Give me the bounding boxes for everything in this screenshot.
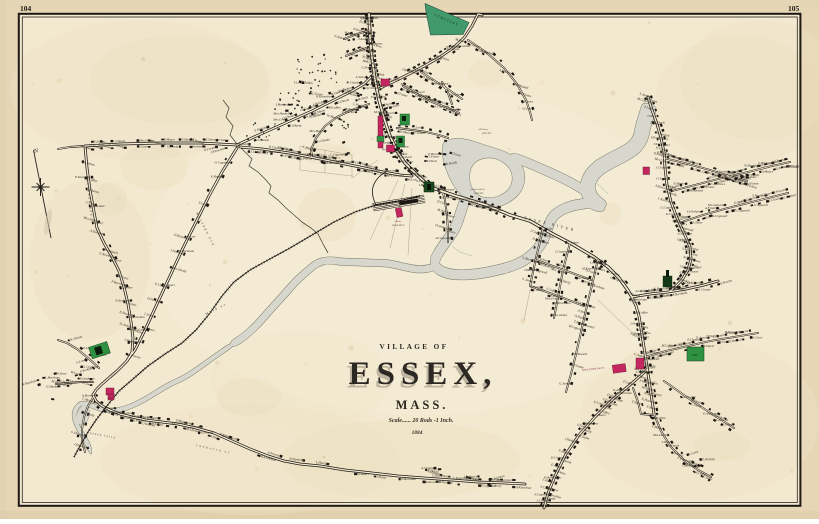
svg-text:N.Story: N.Story bbox=[691, 221, 703, 225]
svg-text:E.Burnham: E.Burnham bbox=[427, 152, 444, 156]
svg-text:N.Mears: N.Mears bbox=[672, 182, 685, 186]
svg-text:SHOE MFY: SHOE MFY bbox=[392, 224, 405, 227]
svg-text:MASS.: MASS. bbox=[396, 398, 449, 412]
svg-text:C.Davis: C.Davis bbox=[130, 340, 141, 344]
svg-text:J.Choate: J.Choate bbox=[656, 176, 668, 180]
svg-text:VILLAGE OF: VILLAGE OF bbox=[380, 343, 449, 351]
svg-text:J.Cogswell: J.Cogswell bbox=[753, 203, 768, 207]
svg-text:D.Lufkin: D.Lufkin bbox=[534, 503, 547, 507]
svg-text:MILL: MILL bbox=[107, 397, 114, 400]
svg-text:M.Cogswell: M.Cogswell bbox=[707, 203, 724, 207]
svg-text:J.Davis: J.Davis bbox=[677, 232, 688, 236]
svg-text:J.Cogswell: J.Cogswell bbox=[555, 249, 570, 253]
svg-text:S.Proctor: S.Proctor bbox=[401, 159, 414, 163]
svg-text:T.Gove: T.Gove bbox=[139, 145, 149, 149]
svg-text:N.Cogswell: N.Cogswell bbox=[711, 214, 727, 218]
svg-text:E.Cogswell: E.Cogswell bbox=[379, 111, 395, 115]
svg-text:T.Davis: T.Davis bbox=[704, 344, 715, 348]
svg-text:SHIP YD: SHIP YD bbox=[482, 132, 491, 135]
svg-text:Mrs.Davis: Mrs.Davis bbox=[652, 433, 668, 437]
svg-text:O.Davis: O.Davis bbox=[668, 443, 680, 447]
svg-text:A.Mears: A.Mears bbox=[761, 170, 774, 174]
svg-text:SHIP YD: SHIP YD bbox=[474, 192, 483, 195]
svg-text:A.D.Story: A.D.Story bbox=[477, 128, 489, 131]
svg-text:A.Story: A.Story bbox=[393, 220, 402, 223]
svg-text:C.Low: C.Low bbox=[412, 126, 422, 130]
svg-text:G.Proctor: G.Proctor bbox=[361, 65, 375, 69]
svg-text:O.Proctor: O.Proctor bbox=[382, 169, 396, 173]
svg-text:M.Howard: M.Howard bbox=[439, 188, 455, 192]
svg-text:G.Choate: G.Choate bbox=[698, 288, 711, 292]
svg-text:W.James: W.James bbox=[642, 370, 654, 374]
svg-text:T.Davis: T.Davis bbox=[427, 159, 438, 163]
svg-text:L.Gove: L.Gove bbox=[111, 258, 122, 262]
svg-text:E.Hardy: E.Hardy bbox=[747, 173, 760, 177]
svg-text:O.Burnham: O.Burnham bbox=[442, 195, 458, 199]
svg-text:D.Choate: D.Choate bbox=[364, 86, 378, 90]
svg-text:M.Low: M.Low bbox=[407, 177, 418, 181]
svg-text:J.Story: J.Story bbox=[647, 114, 657, 118]
svg-text:F.Haskell: F.Haskell bbox=[549, 294, 563, 298]
svg-text:E.Hardy: E.Hardy bbox=[210, 174, 223, 178]
svg-text:ESSEX,: ESSEX, bbox=[349, 356, 498, 392]
svg-text:D.Perkins: D.Perkins bbox=[686, 210, 701, 214]
svg-text:O.Choate: O.Choate bbox=[347, 81, 360, 85]
svg-text:E.Gove: E.Gove bbox=[751, 335, 762, 339]
svg-text:G.Hardy: G.Hardy bbox=[167, 145, 179, 149]
svg-text:A.Choate: A.Choate bbox=[420, 466, 434, 470]
svg-text:T.Howard: T.Howard bbox=[485, 205, 498, 209]
svg-text:G.Cogswell: G.Cogswell bbox=[734, 209, 750, 213]
svg-text:J.Perkins: J.Perkins bbox=[630, 322, 643, 326]
svg-text:E.Perkins: E.Perkins bbox=[701, 457, 716, 461]
svg-text:G.Cogswell: G.Cogswell bbox=[83, 365, 99, 369]
svg-text:M.Howard: M.Howard bbox=[433, 82, 449, 86]
svg-text:O.Perkins: O.Perkins bbox=[189, 144, 203, 148]
svg-text:L.Gove: L.Gove bbox=[189, 424, 200, 428]
svg-text:N.Burnham: N.Burnham bbox=[616, 391, 633, 395]
svg-text:Scale...... 20 Rods -1 Inch.: Scale...... 20 Rods -1 Inch. bbox=[389, 418, 454, 424]
svg-text:CEM.: CEM. bbox=[692, 354, 699, 357]
svg-text:J.Andrews: J.Andrews bbox=[463, 474, 478, 479]
svg-text:G.James: G.James bbox=[559, 381, 571, 385]
svg-text:O.Mears: O.Mears bbox=[723, 423, 735, 427]
svg-text:C.James: C.James bbox=[414, 131, 426, 135]
svg-text:S.Story: S.Story bbox=[524, 100, 534, 104]
svg-text:J.Foster: J.Foster bbox=[122, 286, 134, 290]
svg-text:104: 104 bbox=[20, 4, 32, 13]
svg-text:S.Story: S.Story bbox=[659, 137, 669, 141]
svg-text:O.James: O.James bbox=[345, 107, 357, 112]
svg-text:M.Lufkin: M.Lufkin bbox=[635, 311, 648, 315]
svg-text:L.Story: L.Story bbox=[355, 75, 366, 79]
svg-text:G.Story: G.Story bbox=[491, 484, 502, 488]
svg-text:O.Knowlton: O.Knowlton bbox=[555, 301, 571, 305]
svg-text:G.Cogswell: G.Cogswell bbox=[660, 206, 676, 210]
svg-text:S.Davis: S.Davis bbox=[390, 77, 401, 81]
svg-text:T.Perkins: T.Perkins bbox=[789, 164, 802, 168]
svg-text:W.Proctor: W.Proctor bbox=[685, 270, 699, 274]
svg-text:S.Howard: S.Howard bbox=[574, 352, 588, 356]
svg-text:Mrs.Mears: Mrs.Mears bbox=[308, 129, 324, 133]
svg-text:S.Burnham: S.Burnham bbox=[401, 477, 416, 481]
svg-text:A.James: A.James bbox=[370, 41, 383, 45]
svg-text:W.Foster: W.Foster bbox=[449, 93, 462, 97]
svg-text:E.James: E.James bbox=[146, 416, 159, 420]
svg-text:A.James & Co.: A.James & Co. bbox=[469, 188, 486, 191]
svg-text:Mrs.Haskell: Mrs.Haskell bbox=[272, 112, 289, 116]
svg-text:A.Lufkin: A.Lufkin bbox=[653, 416, 666, 420]
svg-text:O.Hardy: O.Hardy bbox=[290, 124, 302, 128]
svg-text:J.Lufkin: J.Lufkin bbox=[431, 57, 442, 61]
svg-text:105: 105 bbox=[788, 4, 800, 13]
svg-text:G.Hardy: G.Hardy bbox=[46, 384, 58, 388]
svg-text:Mrs.Howard: Mrs.Howard bbox=[386, 174, 404, 178]
svg-text:D.Foster: D.Foster bbox=[746, 182, 760, 186]
svg-text:L.Foster: L.Foster bbox=[445, 107, 458, 111]
svg-text:L.Choate: L.Choate bbox=[112, 139, 126, 143]
svg-text:F.Davis: F.Davis bbox=[529, 285, 541, 289]
svg-text:E.Hardy: E.Hardy bbox=[540, 226, 553, 230]
svg-text:L.Story: L.Story bbox=[690, 280, 701, 284]
svg-text:A.Cogswell: A.Cogswell bbox=[434, 236, 450, 240]
svg-text:S.Gove: S.Gove bbox=[522, 106, 532, 110]
svg-text:J.Story: J.Story bbox=[94, 221, 104, 225]
svg-text:J.Haskell: J.Haskell bbox=[524, 268, 536, 272]
svg-text:Mrs.James: Mrs.James bbox=[552, 313, 568, 317]
svg-text:D.Low: D.Low bbox=[370, 95, 381, 99]
svg-text:M.Lufkin: M.Lufkin bbox=[328, 106, 341, 110]
svg-text:F.Mears: F.Mears bbox=[163, 137, 176, 141]
svg-text:O.Knowlton: O.Knowlton bbox=[468, 200, 484, 204]
svg-text:M.Mears: M.Mears bbox=[356, 472, 370, 476]
svg-text:E.Davis: E.Davis bbox=[93, 140, 105, 144]
svg-text:O.Choate: O.Choate bbox=[256, 138, 269, 142]
svg-text:F.Hardy: F.Hardy bbox=[544, 497, 556, 501]
svg-text:N.Cogswell: N.Cogswell bbox=[395, 155, 411, 159]
svg-text:G.James: G.James bbox=[567, 240, 579, 244]
svg-text:F.Proctor: F.Proctor bbox=[347, 32, 361, 36]
svg-text:D.Lufkin: D.Lufkin bbox=[134, 328, 147, 332]
svg-text:F.James: F.James bbox=[217, 138, 229, 142]
svg-text:C.Mears: C.Mears bbox=[594, 413, 606, 417]
svg-text:1884: 1884 bbox=[412, 430, 423, 436]
svg-text:E.Story: E.Story bbox=[204, 137, 215, 141]
svg-text:W.Burnham: W.Burnham bbox=[336, 160, 352, 164]
svg-text:Mrs.Foster: Mrs.Foster bbox=[138, 139, 154, 143]
svg-text:W.Choate: W.Choate bbox=[446, 47, 459, 51]
svg-text:T.Low: T.Low bbox=[294, 81, 303, 85]
svg-text:J.Choate: J.Choate bbox=[656, 166, 668, 170]
svg-text:L.Burnham: L.Burnham bbox=[44, 376, 61, 380]
svg-text:N.Haskell: N.Haskell bbox=[180, 137, 194, 141]
svg-text:J.Howard: J.Howard bbox=[275, 103, 288, 107]
svg-text:F.Howard: F.Howard bbox=[234, 142, 248, 146]
svg-text:O.Cogswell: O.Cogswell bbox=[215, 161, 231, 165]
svg-text:D.Andrews: D.Andrews bbox=[79, 377, 95, 381]
svg-text:G.Burnham: G.Burnham bbox=[266, 150, 282, 154]
